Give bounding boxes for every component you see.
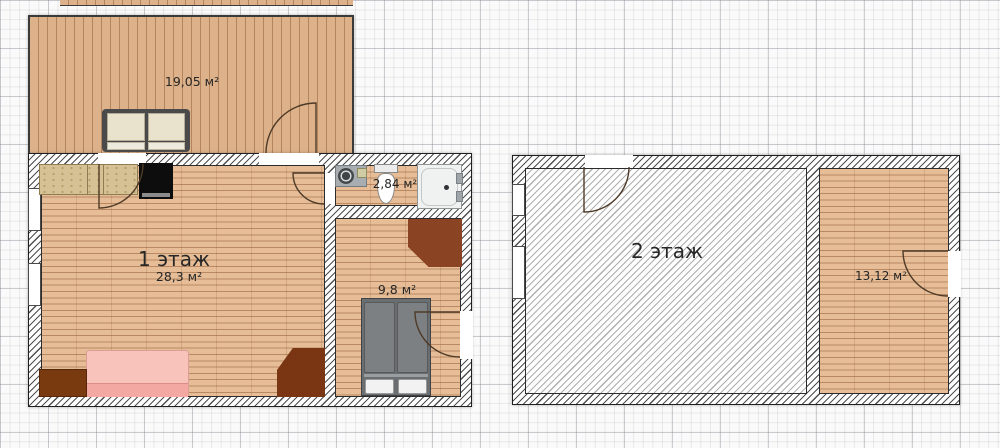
floor1-area-label: 28,3 м² (129, 269, 229, 284)
floor2-title: 2 этаж (587, 239, 747, 263)
blanket-edge (364, 374, 428, 377)
counter-divider (103, 165, 104, 194)
floor1-title: 1 этаж (114, 247, 234, 271)
counter-divider (87, 165, 88, 194)
kitchen-counter[interactable] (39, 164, 138, 195)
building-floor2[interactable]: 2 этаж 13,12 м² (512, 155, 960, 405)
terrace[interactable]: 19,05 м² (28, 15, 354, 153)
pink-sofa-seat (87, 383, 188, 397)
terrace-area-label: 19,05 м² (132, 74, 252, 89)
door-opening-terrace-exit[interactable] (259, 153, 319, 165)
door-opening-bathroom[interactable] (325, 173, 335, 204)
stove-panel (142, 193, 170, 197)
shower-faucet (456, 191, 463, 202)
building-floor1[interactable]: 1 этаж 28,3 м² 2,84 м² 9,8 м² (28, 153, 472, 407)
sofa-cushion (148, 113, 185, 141)
bedroom-area-label: 9,8 м² (347, 282, 447, 297)
window-left-2[interactable] (28, 263, 41, 306)
window-floor2-left-1[interactable] (512, 184, 525, 216)
pink-sofa[interactable] (86, 350, 189, 397)
mattress (364, 302, 395, 373)
sofa-seat (148, 142, 185, 150)
cabinet[interactable] (39, 369, 87, 397)
sofa[interactable] (102, 109, 190, 152)
bathroom-area-label: 2,84 м² (345, 177, 445, 191)
roof-edge-strip (60, 0, 353, 6)
window-floor2-left-2[interactable] (512, 246, 525, 299)
door-opening-room2[interactable] (948, 251, 961, 297)
floorplan-canvas: 19,05 м² (0, 0, 1000, 448)
toilet-tank (374, 164, 398, 173)
mattress (397, 302, 428, 373)
floor-hall[interactable] (525, 168, 807, 394)
stove[interactable] (139, 163, 173, 199)
door-opening-floor2[interactable] (585, 155, 633, 168)
sofa-seat (107, 142, 145, 150)
bed-pillow (398, 379, 427, 394)
bed-pillow (365, 379, 394, 394)
door-opening-entrance[interactable] (460, 311, 473, 359)
sofa-cushion (107, 113, 145, 141)
room2-area-label: 13,12 м² (831, 269, 931, 283)
shower-faucet (456, 173, 463, 184)
double-bed[interactable] (361, 298, 431, 396)
